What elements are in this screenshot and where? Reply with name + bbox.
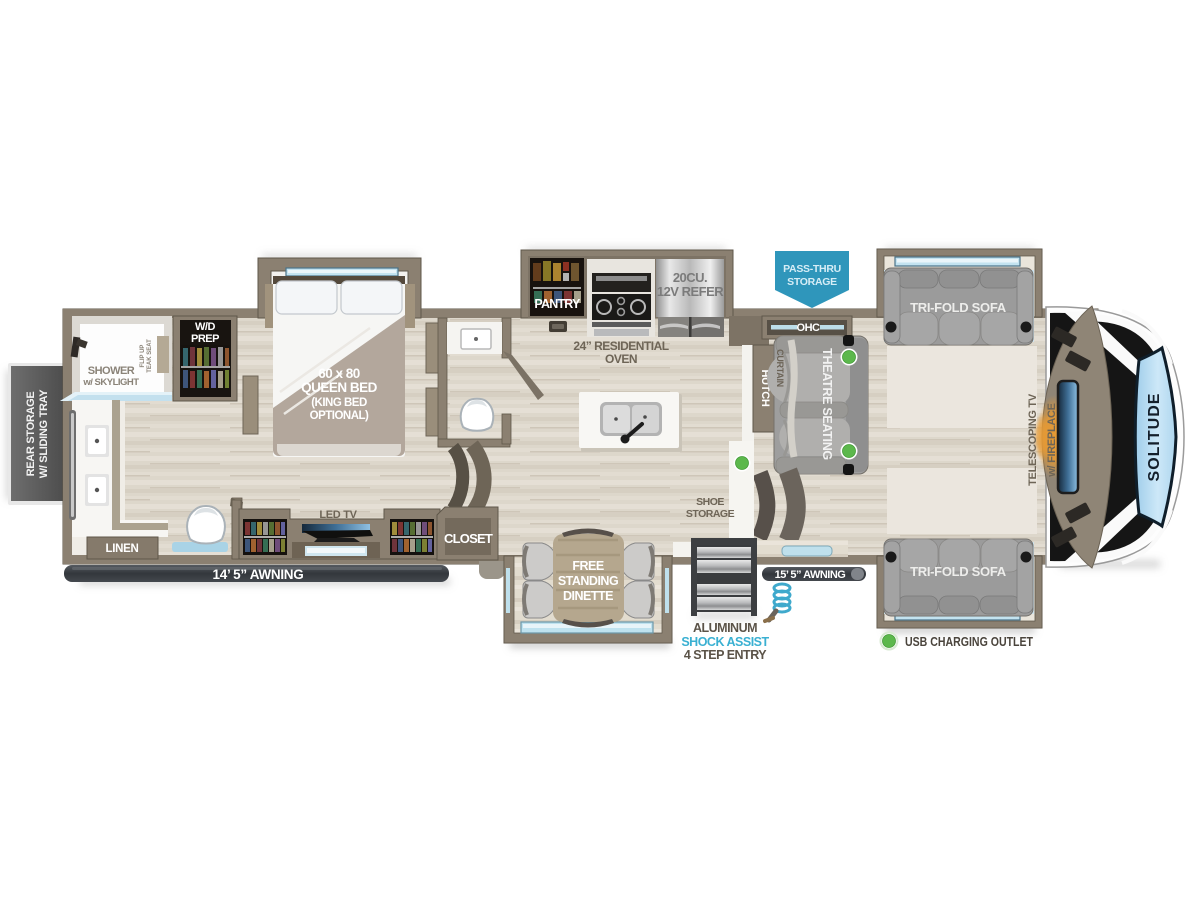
- svg-text:W/D: W/D: [195, 321, 215, 333]
- svg-text:60 x 80: 60 x 80: [318, 366, 360, 381]
- svg-text:STANDING: STANDING: [558, 574, 618, 588]
- svg-text:SHOE: SHOE: [696, 496, 724, 508]
- svg-text:SOLITUDE: SOLITUDE: [1146, 393, 1163, 482]
- svg-text:QUEEN BED: QUEEN BED: [301, 380, 378, 395]
- svg-text:24” RESIDENTIAL: 24” RESIDENTIAL: [573, 339, 668, 353]
- svg-text:CLOSET: CLOSET: [444, 531, 493, 546]
- svg-text:TEAK SEAT: TEAK SEAT: [147, 339, 153, 373]
- svg-text:TRI-FOLD SOFA: TRI-FOLD SOFA: [910, 564, 1007, 579]
- svg-text:LED TV: LED TV: [319, 509, 357, 521]
- svg-text:PANTRY: PANTRY: [534, 297, 581, 311]
- svg-text:TRI-FOLD SOFA: TRI-FOLD SOFA: [910, 300, 1007, 315]
- svg-text:LINEN: LINEN: [105, 543, 138, 555]
- svg-text:STORAGE: STORAGE: [686, 508, 735, 520]
- svg-text:CURTAIN: CURTAIN: [775, 349, 785, 387]
- svg-text:USB CHARGING OUTLET: USB CHARGING OUTLET: [905, 634, 1033, 649]
- svg-text:w/ FIREPLACE: w/ FIREPLACE: [1046, 403, 1058, 477]
- svg-text:(KING BED: (KING BED: [311, 397, 367, 409]
- svg-text:SHOCK ASSIST: SHOCK ASSIST: [681, 635, 769, 649]
- svg-text:THEATRE SEATING: THEATRE SEATING: [820, 348, 834, 460]
- svg-text:OHC: OHC: [797, 322, 821, 334]
- svg-text:15’ 5” AWNING: 15’ 5” AWNING: [775, 569, 846, 581]
- svg-text:OPTIONAL): OPTIONAL): [310, 410, 369, 422]
- svg-text:w/ SKYLIGHT: w/ SKYLIGHT: [82, 377, 139, 388]
- svg-text:W/ SLIDING TRAY: W/ SLIDING TRAY: [38, 389, 50, 479]
- svg-text:SHOWER: SHOWER: [88, 365, 135, 377]
- svg-text:DINETTE: DINETTE: [563, 589, 613, 603]
- svg-text:REAR STORAGE: REAR STORAGE: [25, 392, 37, 477]
- svg-text:OVEN: OVEN: [605, 352, 637, 366]
- svg-text:20CU.: 20CU.: [673, 270, 707, 285]
- svg-text:12V REFER: 12V REFER: [657, 284, 724, 299]
- svg-text:PASS-THRU: PASS-THRU: [783, 263, 841, 275]
- svg-text:ALUMINUM: ALUMINUM: [693, 621, 757, 635]
- svg-text:PREP: PREP: [191, 333, 219, 345]
- svg-text:4 STEP ENTRY: 4 STEP ENTRY: [684, 648, 767, 662]
- svg-text:14’ 5” AWNING: 14’ 5” AWNING: [213, 567, 304, 582]
- svg-text:TELESCOPING TV: TELESCOPING TV: [1027, 393, 1039, 486]
- svg-text:FREE: FREE: [572, 559, 604, 573]
- svg-text:FLIP UP: FLIP UP: [140, 345, 146, 368]
- svg-text:STORAGE: STORAGE: [787, 276, 837, 288]
